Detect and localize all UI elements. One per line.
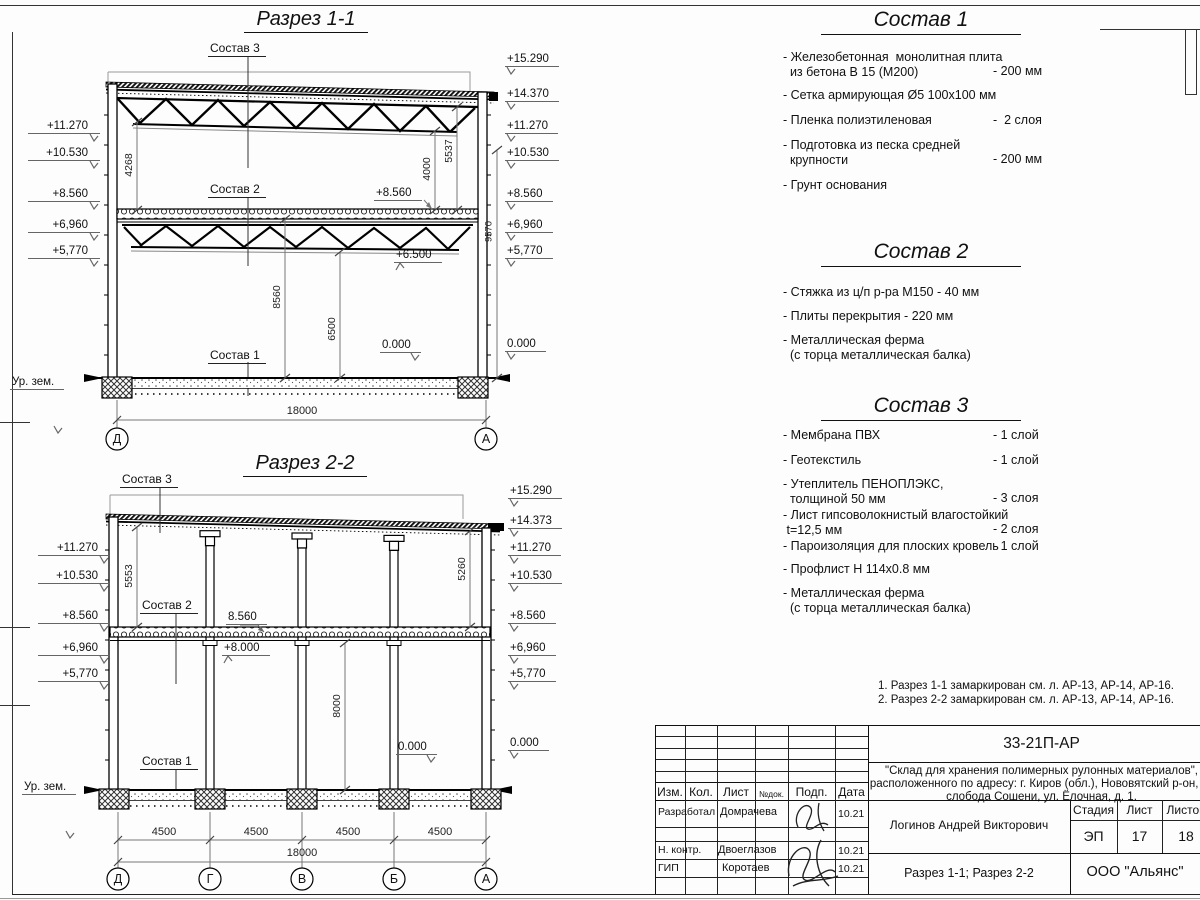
axis-bubble-label: Д	[106, 872, 130, 886]
elevation-mark: +11.270	[505, 120, 558, 134]
section-1-title: Разрез 1-1	[244, 8, 368, 33]
dimension-label: 5553	[123, 553, 135, 599]
tb-doc-code: 33-21П-АР	[868, 735, 1200, 753]
tb-sheet-number: 17	[1117, 828, 1162, 844]
section-1-drawing	[84, 56, 510, 450]
elevation-mark: +10.530	[28, 147, 100, 161]
elevation-mark: 0.000	[396, 741, 437, 755]
titleblock-line	[655, 725, 1200, 726]
spec-item: - Мембрана ПВХ	[783, 428, 880, 443]
axis-bubble-label: В	[290, 872, 314, 886]
elevation-mark: +8.560	[508, 610, 556, 624]
dimension-label: 4500	[322, 826, 374, 838]
elevation-mark: +5,770	[28, 245, 100, 259]
elevation-mark: +8.560	[38, 610, 110, 624]
elevation-arrow-icon	[98, 681, 110, 690]
frame-left-line	[12, 32, 13, 894]
elevation-mark: 0.000	[380, 339, 421, 353]
elevation-mark: +14.370	[505, 88, 559, 102]
tb-chief-name: Логинов Андрей Викторович	[868, 818, 1070, 832]
frame-tick	[0, 705, 30, 706]
elevation-arrow-icon	[508, 555, 520, 564]
elevation-arrow-icon	[88, 133, 100, 142]
spec-item: - Плиты перекрытия - 220 мм	[783, 309, 953, 324]
elevation-arrow-icon	[88, 201, 100, 210]
elevation-arrow-icon	[222, 655, 234, 664]
titleblock-line	[868, 853, 1200, 854]
callout-sostav1: Состав 1	[208, 348, 266, 364]
spec-item-value: - 200 мм	[993, 152, 1042, 166]
elevation-arrow-icon	[98, 623, 110, 632]
sheet-bottom-edge	[0, 898, 1200, 899]
callout-sostav3: Состав 3	[120, 472, 178, 488]
spec-item: - Профлист Н 114х0.8 мм	[783, 562, 930, 577]
tb-project-line: "Склад для хранения полимерных рулонных …	[868, 765, 1200, 777]
signature-icon	[783, 836, 843, 890]
spec-2-title: Состав 2	[821, 240, 1021, 267]
elevation-mark: +8.000	[222, 642, 270, 656]
titleblock-line	[655, 759, 868, 760]
elevation-arrow-icon	[394, 262, 406, 271]
spec-item: - Подготовка из песка средней крупности	[783, 138, 960, 167]
elevation-arrow-icon	[98, 583, 110, 592]
elevation-arrow-icon	[505, 133, 517, 142]
sheet-top-edge	[0, 5, 1200, 6]
elevation-arrow-icon	[508, 583, 520, 592]
elevation-mark: +14.373	[508, 515, 562, 529]
axis-bubble-label: Д	[105, 432, 129, 446]
titleblock-line	[655, 736, 868, 737]
spec-item: - Металлическая ферма (с торца металличе…	[783, 586, 971, 615]
tb-col-izm: Изм.	[655, 785, 685, 799]
dimension-label: 4500	[414, 826, 466, 838]
elevation-mark: +6,960	[508, 642, 556, 656]
spec-item: - Пароизоляция для плоских кровель	[783, 539, 999, 554]
spec-item-value: - 3 слоя	[993, 491, 1038, 505]
dimension-label: 18000	[276, 405, 328, 417]
tb-date: 10.21	[838, 808, 864, 820]
note-line: 1. Разрез 1-1 замаркирован см. л. АР-13,…	[878, 680, 1174, 692]
elevation-mark: 0.000	[508, 737, 549, 751]
elevation-arrow-icon	[98, 655, 110, 664]
titleblock-line	[655, 771, 868, 772]
frame-bottom-line	[12, 894, 1200, 895]
titleblock-line	[655, 827, 868, 828]
elevation-arrow-icon	[508, 528, 520, 537]
elevation-arrow-icon	[88, 232, 100, 241]
tb-col-data: Дата	[835, 785, 868, 799]
tb-role: Н. контр.	[658, 844, 701, 856]
elevation-mark: +10.530	[508, 570, 562, 584]
elevation-arrow-icon	[409, 352, 421, 361]
elevation-arrow-icon	[505, 201, 517, 210]
elevation-arrow-icon	[508, 498, 520, 507]
elevation-arrow-icon	[425, 754, 437, 763]
elevation-arrow-icon	[505, 66, 517, 75]
dimension-label: 4268	[123, 142, 135, 188]
tb-role: ГИП	[658, 862, 679, 874]
spec-item: - Утеплитель ПЕНОПЛЭКС, толщиной 50 мм	[783, 477, 943, 506]
elevation-mark: +8.560	[505, 188, 553, 202]
corner-stamp-box	[1185, 29, 1197, 95]
section-2-title: Разрез 2-2	[243, 452, 367, 477]
tb-stage-label: Стадия	[1070, 803, 1117, 817]
tb-stage-value: ЭП	[1070, 828, 1117, 844]
spec-item-value: - 2 слоя	[993, 522, 1038, 536]
dimension-label: 5537	[443, 128, 455, 174]
elevation-arrow-icon	[505, 351, 517, 360]
elevation-mark: +11.270	[508, 542, 561, 556]
spec-item: - Стяжка из ц/п р-ра М150 - 40 мм	[783, 285, 979, 300]
elevation-mark: +8.560	[28, 188, 100, 202]
elevation-mark: +15.290	[508, 485, 562, 499]
elevation-arrow-icon	[52, 425, 64, 434]
dimension-label: 8560	[271, 274, 283, 320]
callout-sostav3: Состав 3	[208, 41, 266, 57]
dimension-label: 18000	[276, 847, 328, 859]
spec-item: - Геотекстиль	[783, 453, 861, 468]
elevation-arrow-icon	[508, 623, 520, 632]
ground-level-label: Ур. зем.	[22, 757, 76, 831]
spec-item: - Лист гипсоволокнистый влагостойкий t=1…	[783, 508, 1008, 537]
callout-sostav2: Состав 2	[140, 598, 198, 614]
callout-sostav1: Состав 1	[140, 754, 198, 770]
signature-icon	[790, 797, 834, 837]
elevation-mark: +5,770	[505, 245, 553, 259]
spec-item-value: - 1 слой	[993, 539, 1039, 553]
spec-item-value: - 1 слой	[993, 428, 1039, 442]
spec-item-value: - 2 слоя	[993, 113, 1042, 127]
elevation-arrow-icon	[508, 750, 520, 759]
drawing-sheet: Разрез 1-1 Состав 3 Состав 2 Состав 1 Ур…	[0, 0, 1200, 900]
tb-sheet-title: Разрез 1-1; Разрез 2-2	[868, 866, 1070, 880]
tb-name: Коротаев	[722, 862, 770, 874]
dimension-label: 6500	[326, 306, 338, 352]
spec-item: - Металлическая ферма (с торца металличе…	[783, 333, 971, 362]
axis-bubble-label: А	[474, 872, 498, 886]
frame-tick	[0, 627, 30, 628]
elevation-mark: +6,960	[38, 642, 110, 656]
elevation-mark: +6,960	[505, 219, 553, 233]
tb-project-line: расположенного по адресу: г. Киров (обл.…	[868, 778, 1200, 790]
spec-item-value: - 1 слой	[993, 453, 1039, 467]
titleblock-line	[655, 782, 868, 783]
spec-1-title: Состав 1	[821, 8, 1021, 35]
tb-sheets-label: Листов	[1162, 803, 1200, 817]
elevation-mark: +10.530	[38, 570, 110, 584]
spec-3-title: Состав 3	[821, 394, 1021, 421]
elevation-mark: 0.000	[505, 338, 546, 352]
frame-top-right-line	[1100, 29, 1200, 30]
dimension-label: 9570	[484, 209, 495, 255]
elevation-arrow-icon	[505, 258, 517, 267]
elevation-mark: +11.270	[38, 542, 110, 556]
tb-sheets-total: 18	[1162, 828, 1200, 844]
elevation-arrow-icon	[88, 258, 100, 267]
tb-col-list: Лист	[717, 785, 755, 799]
tb-project-line: слобода Сошени, ул. Ёлочная, д. 1.	[868, 791, 1200, 803]
note-line: 2. Разрез 2-2 замаркирован см. л. АР-13,…	[878, 694, 1174, 706]
elevation-arrow-icon	[98, 555, 110, 564]
elevation-mark: +6.500	[394, 249, 442, 263]
elevation-mark: +10.530	[505, 147, 559, 161]
dimension-label: 4500	[230, 826, 282, 838]
tb-name: Домрачева	[720, 806, 777, 818]
spec-item: - Сетка армирующая Ø5 100х100 мм	[783, 88, 996, 103]
spec-item: - Железобетонная монолитная плита из бет…	[783, 50, 1002, 79]
elevation-mark: 8.560	[226, 611, 267, 625]
tb-col-ndok: №док.	[755, 789, 788, 799]
callout-sostav2: Состав 2	[208, 182, 266, 198]
elevation-arrow-icon	[505, 101, 517, 110]
tb-col-kol: Кол.	[685, 785, 717, 799]
titleblock-line	[717, 725, 718, 894]
elevation-arrow-icon	[508, 681, 520, 690]
elevation-mark: +6,960	[28, 219, 100, 233]
titleblock-line	[655, 748, 868, 749]
elevation-arrow-icon	[64, 830, 76, 839]
tb-company: ООО "Альянс"	[1070, 864, 1200, 880]
titleblock-line	[1070, 820, 1200, 821]
ground-level-label: Ур. зем.	[10, 352, 64, 426]
elevation-mark: +5,770	[38, 668, 110, 682]
spec-item: - Пленка полиэтиленовая	[783, 113, 932, 128]
dimension-label: 4500	[138, 826, 190, 838]
tb-sheet-label: Лист	[1117, 803, 1162, 817]
dimension-label: 5260	[456, 546, 468, 592]
axis-bubble-label: Г	[198, 872, 222, 886]
elevation-mark: +5,770	[508, 668, 556, 682]
elevation-mark: +11.270	[28, 120, 100, 134]
elevation-arrow-icon	[508, 655, 520, 664]
elevation-arrow-icon	[505, 160, 517, 169]
elevation-arrow-icon	[88, 160, 100, 169]
elevation-mark: +15.290	[505, 53, 559, 67]
dimension-label: 8000	[331, 683, 343, 729]
axis-bubble-label: А	[474, 432, 498, 446]
spec-item-value: - 200 мм	[993, 64, 1042, 78]
axis-bubble-label: Б	[382, 872, 406, 886]
titleblock-line	[868, 762, 1200, 763]
titleblock-line	[655, 725, 656, 894]
tb-role: Разработал	[658, 806, 715, 818]
spec-item: - Грунт основания	[783, 178, 887, 193]
elevation-arrow-icon	[505, 232, 517, 241]
dimension-label: 4000	[421, 146, 433, 192]
elevation-mark: +8.560	[374, 187, 422, 201]
tb-name: Двоеглазов	[718, 844, 776, 856]
